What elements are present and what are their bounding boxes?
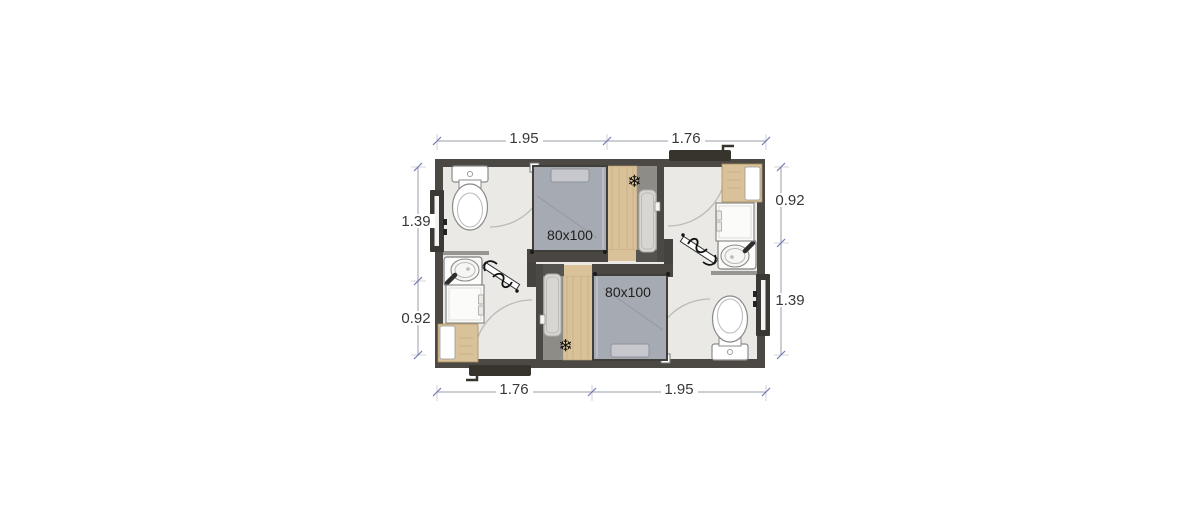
wood-counter: [722, 164, 762, 202]
counter-inset: [745, 167, 760, 200]
dim-right-upper: 0.92: [775, 192, 804, 209]
bed-size-label-top: 80x100: [547, 227, 593, 243]
dim-right-lower: 1.39: [775, 292, 804, 309]
dim-bottom-left: 1.76: [499, 381, 528, 398]
entrance-handle: [723, 146, 734, 150]
floor-plan-canvas: ❄: [0, 0, 1200, 524]
toilet: [452, 166, 488, 230]
cabinet: [716, 203, 754, 241]
dim-top-right: 1.76: [671, 130, 700, 147]
entrance-threshold: [669, 150, 731, 161]
bed-size-label-bottom: 80x100: [605, 284, 651, 300]
dim-left-upper: 1.39: [401, 213, 430, 230]
ac-snowflake-icon: ❄: [627, 172, 641, 192]
flush-button: [467, 171, 472, 176]
door-latch: [655, 202, 660, 211]
floor-plan-page: ❄: [0, 0, 1200, 524]
washbasin: [718, 240, 756, 269]
dim-top-left: 1.95: [509, 130, 538, 147]
dim-left-lower: 0.92: [401, 310, 430, 327]
pillow: [551, 169, 589, 182]
dim-bottom-right: 1.95: [664, 381, 693, 398]
